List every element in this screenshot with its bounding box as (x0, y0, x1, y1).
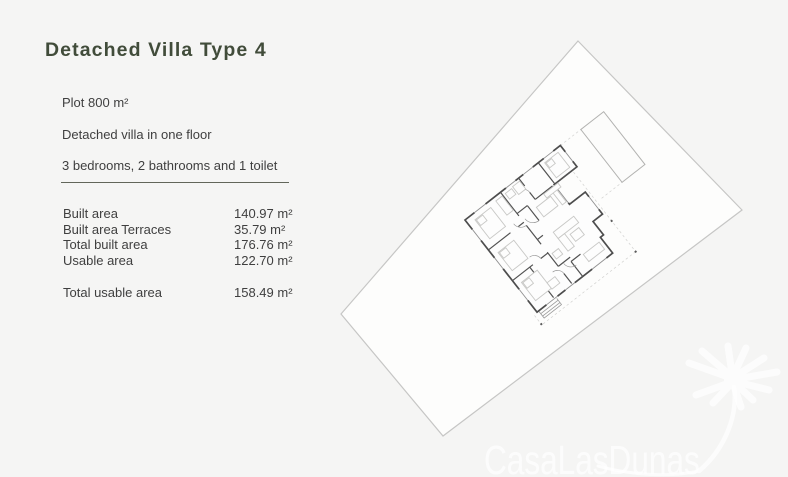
svg-text:CasaLasDunas: CasaLasDunas (484, 437, 700, 477)
